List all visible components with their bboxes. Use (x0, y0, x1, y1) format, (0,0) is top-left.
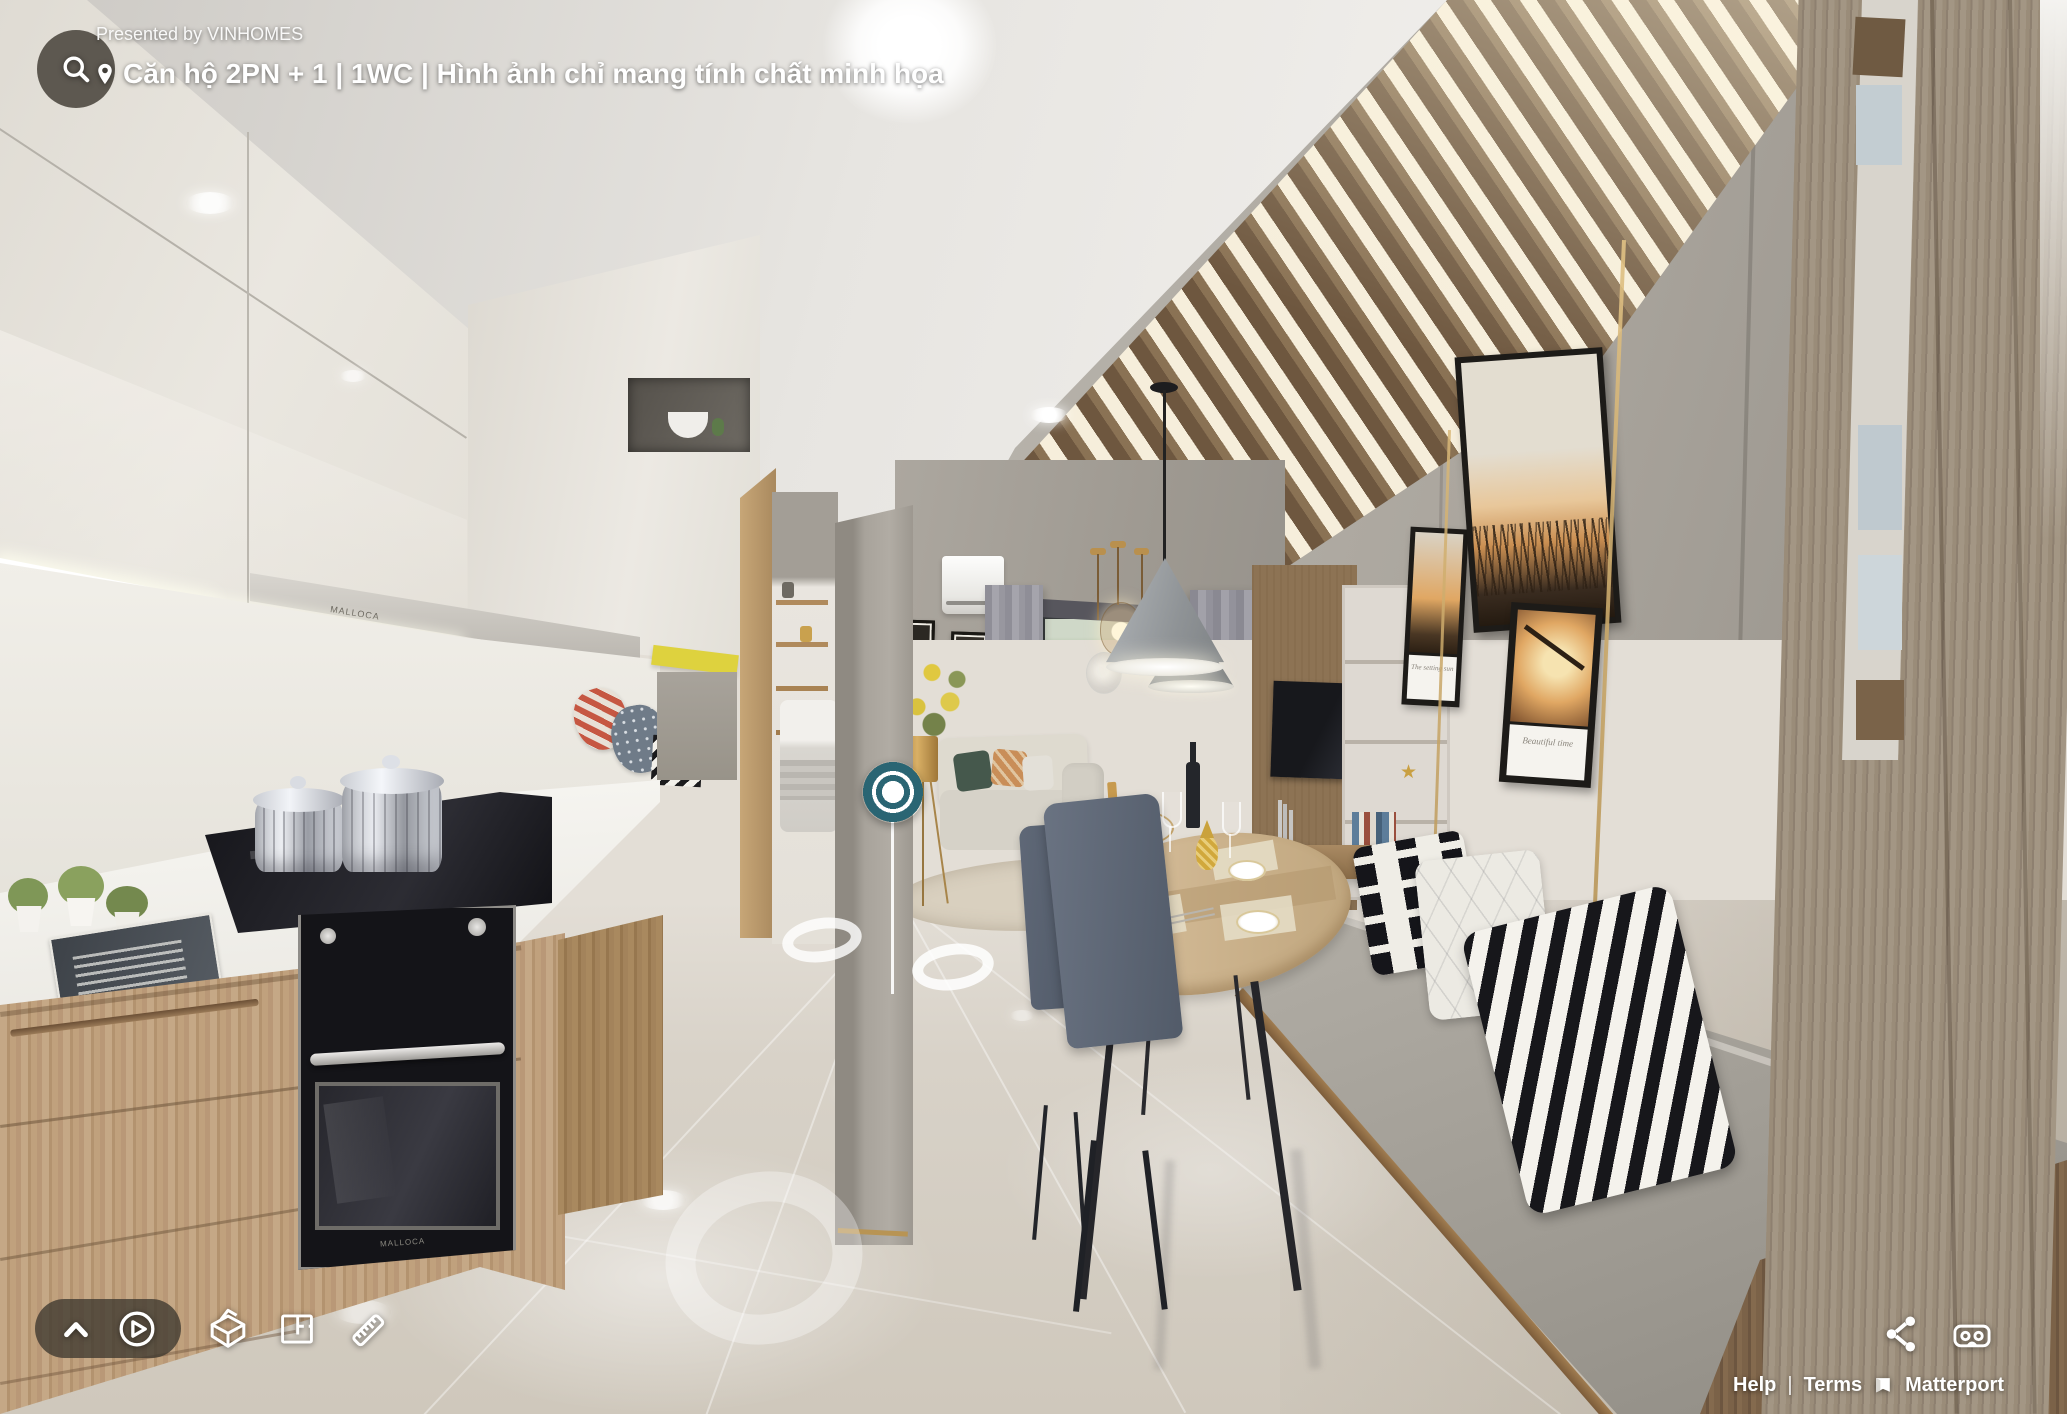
niche-cactus (712, 418, 724, 436)
picture-small-portrait: The setting sun (1401, 527, 1468, 708)
controls-pill (35, 1299, 181, 1358)
play-circle-icon[interactable] (115, 1307, 159, 1351)
glass-pendant-rod (1117, 547, 1119, 605)
matterport-viewer: ★ The setting sun Beautiful time (0, 0, 2067, 1414)
matterport-brand-link[interactable]: Matterport (1905, 1374, 2004, 1397)
pillar-gap-glass (1858, 425, 1902, 530)
share-icon[interactable] (1878, 1310, 1926, 1358)
terms-link[interactable]: Terms (1804, 1374, 1863, 1397)
wine-glass-stem (1229, 834, 1231, 858)
presented-by-label: Presented by VINHOMES (96, 24, 303, 45)
teal-nav-marker[interactable] (862, 761, 924, 823)
pillar-gap-glass (1858, 555, 1902, 650)
picture-medium-portrait: Beautiful time (1499, 602, 1603, 788)
pot-stripes (342, 782, 442, 872)
shelf-line (1345, 740, 1447, 744)
sofa-pillow-white (1022, 755, 1054, 791)
floor-light-reflection (1010, 1010, 1034, 1021)
chevron-up-icon[interactable] (56, 1309, 96, 1349)
pillar-gap-glass (1856, 85, 1902, 165)
glass-pendant-rod (1141, 554, 1143, 604)
cone-lamp-large-rim (1106, 658, 1224, 676)
page-title: Căn hộ 2PN + 1 | 1WC | Hình ảnh chỉ mang… (123, 58, 944, 90)
wine-glass (1162, 792, 1182, 828)
ceiling-spotlight (1030, 407, 1068, 423)
pillar-gap-woodbar (1853, 17, 1906, 78)
picture-caption: The setting sun (1407, 655, 1457, 701)
picture-caption: Beautiful time (1506, 724, 1587, 780)
pillar-gap-woodbar (1856, 680, 1904, 740)
concrete-pillar (835, 505, 913, 1245)
wine-bottle-neck (1190, 742, 1196, 766)
ruler-icon[interactable] (344, 1306, 392, 1354)
pot-lid (253, 788, 345, 812)
picture-grass-silhouette (1472, 517, 1613, 596)
footer-separator: | (1787, 1374, 1792, 1397)
pot-lid-knob (290, 776, 306, 789)
pot-lid-knob (382, 755, 400, 769)
dinner-plate (1228, 860, 1266, 881)
wine-glass-stem (1169, 826, 1171, 852)
search-icon (58, 51, 94, 87)
niche-concrete (657, 672, 737, 780)
pendant-cable (1163, 390, 1166, 562)
dinner-plate (1236, 910, 1280, 934)
bedroom-shelf (776, 600, 828, 605)
cabinet-seam-vertical (247, 132, 249, 606)
floorplan-icon[interactable] (275, 1307, 319, 1351)
bedroom-shelf-items (782, 582, 794, 598)
wine-glass (1222, 802, 1241, 836)
wine-bottle (1186, 762, 1200, 828)
cone-lamp-small-rim (1148, 680, 1234, 693)
cabinet-spotlight-reflection (340, 370, 366, 382)
title-row: Căn hộ 2PN + 1 | 1WC | Hình ảnh chỉ mang… (96, 58, 944, 90)
glass-pendant-rod (1097, 554, 1099, 620)
bedroom-blanket (780, 760, 838, 800)
footer-links: Help | Terms Matterport (1733, 1374, 2004, 1397)
sofa-pillow-green (953, 750, 994, 793)
picture-large-landscape (1455, 347, 1622, 633)
base-side-panel (558, 915, 663, 1215)
marker-pole (891, 822, 894, 994)
oven-knob (468, 918, 486, 936)
dollhouse-icon[interactable] (205, 1306, 251, 1352)
help-link[interactable]: Help (1733, 1374, 1776, 1397)
right-edge-light (2040, 0, 2067, 540)
pineapple-decor (1196, 836, 1218, 870)
shelf-star-decor: ★ (1400, 763, 1420, 783)
bedroom-doorframe (740, 468, 776, 938)
cabinet-spotlight-reflection (186, 192, 234, 214)
matterport-logo-icon (1873, 1375, 1894, 1396)
location-pin-icon (96, 63, 114, 85)
tv-screen (1270, 681, 1347, 780)
vr-headset-icon[interactable] (1946, 1313, 1998, 1355)
oven-knob (320, 928, 336, 944)
picture-photo (1409, 532, 1463, 654)
pot-lid (340, 768, 444, 794)
